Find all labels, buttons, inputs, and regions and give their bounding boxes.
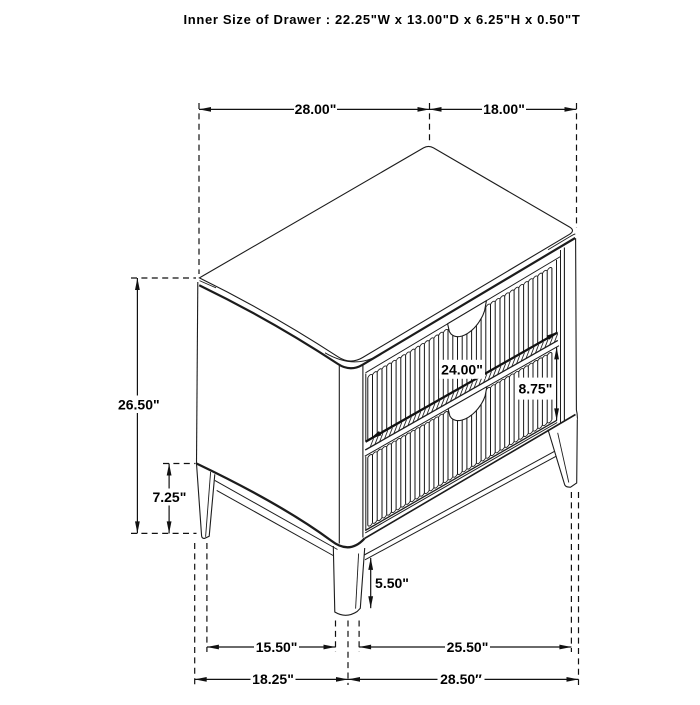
svg-text:24.00": 24.00" xyxy=(441,361,483,377)
svg-text:18.25": 18.25" xyxy=(252,671,294,687)
svg-text:28.50″: 28.50″ xyxy=(440,671,482,687)
svg-text:25.50": 25.50" xyxy=(447,639,489,655)
svg-text:15.50": 15.50" xyxy=(256,639,298,655)
svg-text:7.25": 7.25" xyxy=(152,489,186,505)
svg-text:8.75": 8.75" xyxy=(518,381,552,397)
svg-text:18.00": 18.00" xyxy=(483,101,525,117)
svg-text:26.50": 26.50" xyxy=(118,396,160,412)
svg-text:28.00": 28.00" xyxy=(295,101,337,117)
svg-text:5.50": 5.50" xyxy=(375,575,409,591)
